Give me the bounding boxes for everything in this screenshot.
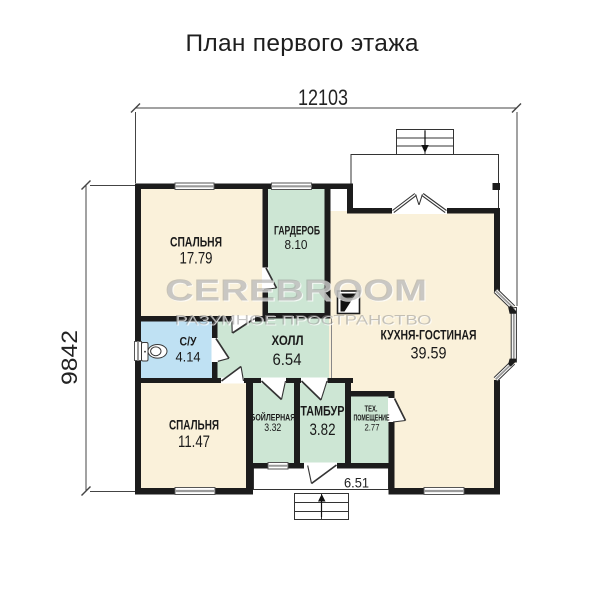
svg-text:39.59: 39.59 — [411, 344, 447, 363]
svg-text:6.54: 6.54 — [273, 350, 302, 369]
svg-text:ХОЛЛ: ХОЛЛ — [272, 333, 304, 348]
svg-text:17.79: 17.79 — [180, 249, 213, 268]
svg-text:ГАРДЕРОБ: ГАРДЕРОБ — [274, 226, 320, 238]
svg-text:КУХНЯ-ГОСТИНАЯ: КУХНЯ-ГОСТИНАЯ — [381, 328, 477, 343]
svg-text:4.14: 4.14 — [176, 350, 201, 365]
svg-text:3.32: 3.32 — [264, 422, 281, 434]
svg-text:8.10: 8.10 — [285, 237, 308, 252]
svg-text:План первого этажа: План первого этажа — [186, 30, 419, 57]
svg-text:ТАМБУР: ТАМБУР — [300, 404, 344, 419]
svg-text:CEREBROOM: CEREBROOM — [165, 273, 427, 308]
svg-text:ТЕХ.: ТЕХ. — [365, 405, 378, 414]
svg-text:11.47: 11.47 — [178, 432, 210, 451]
svg-text:6.51: 6.51 — [344, 475, 369, 491]
svg-text:2.77: 2.77 — [365, 422, 380, 432]
svg-text:ПОМЕЩЕНИЕ: ПОМЕЩЕНИЕ — [354, 414, 390, 423]
svg-text:СПАЛЬНЯ: СПАЛЬНЯ — [170, 235, 222, 250]
svg-text:3.82: 3.82 — [310, 421, 336, 439]
svg-text:С/У: С/У — [180, 336, 198, 348]
svg-text:9842: 9842 — [57, 330, 82, 385]
svg-text:РАЗУМНОЕ ПРОСТРАНСТВО: РАЗУМНОЕ ПРОСТРАНСТВО — [175, 313, 432, 328]
svg-text:СПАЛЬНЯ: СПАЛЬНЯ — [169, 418, 219, 433]
svg-text:12103: 12103 — [298, 85, 348, 110]
